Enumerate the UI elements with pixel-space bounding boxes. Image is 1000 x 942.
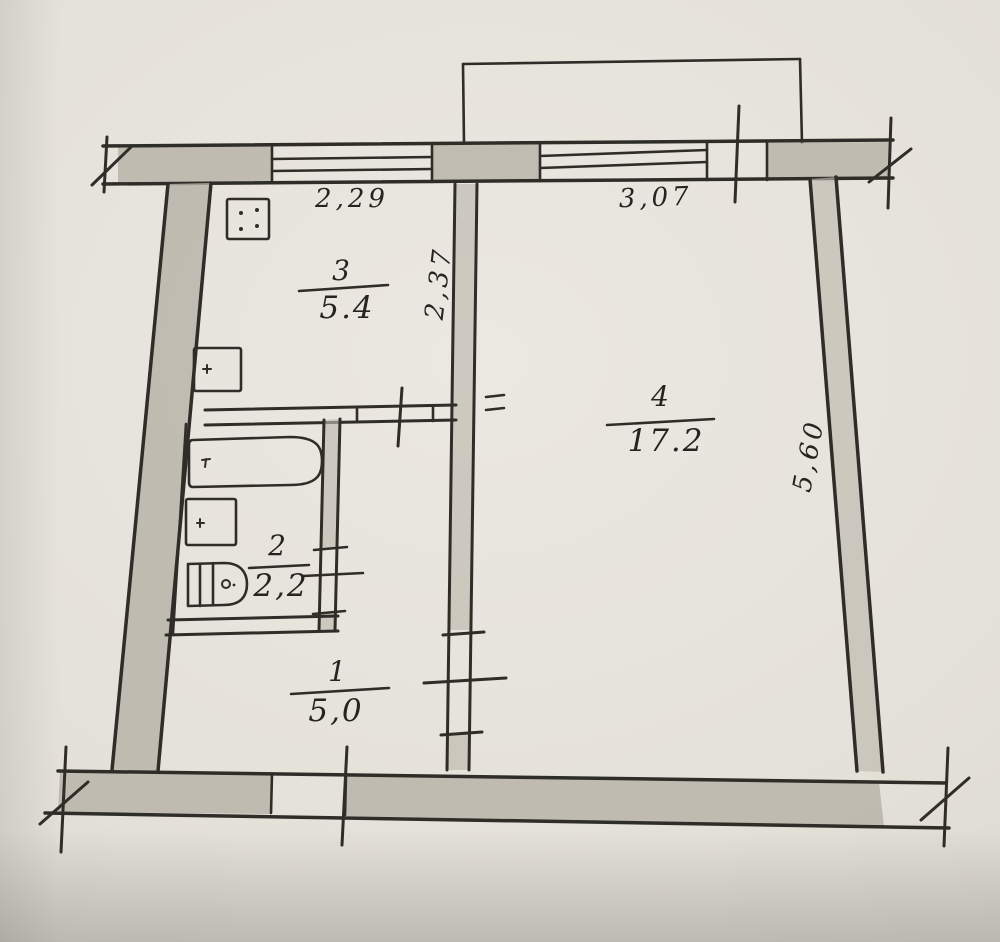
balcony-outline [463,59,802,143]
room-2-area: 2,2 [252,568,308,604]
right-wall [810,177,883,772]
toilet-icon [188,563,247,606]
dimension-right-side: 5,60 [787,416,831,494]
window-left [272,157,432,171]
room-1-number: 1 [328,655,346,688]
room4-door-opening [424,632,506,735]
room-1-label: 1 5,0 [291,655,389,729]
dimension-tick-divider [398,388,402,446]
bathroom-door-opening [313,547,347,614]
equals-mark [486,395,504,410]
top-wall [92,106,911,208]
floor-plan-drawing: 2,29 3,07 2,37 5,60 3 5.4 2 2,2 1 5,0 4 … [0,0,1000,942]
room-3-area: 5.4 [319,290,374,326]
kitchen-sink-icon [194,348,241,391]
room-1-area: 5,0 [308,693,363,729]
room-4-number: 4 [650,380,669,413]
room-4-area: 17.2 [627,423,704,459]
room-3-number: 3 [332,254,350,287]
room2-leader-line [303,573,363,576]
bathtub-icon [189,437,322,487]
bottom-wall [40,747,969,852]
dimension-window-left: 2,29 [314,184,389,214]
entrance-opening [271,774,346,815]
room-2-number: 2 [267,529,286,562]
dimension-tick-top-mid [735,106,739,202]
room-2-label: 2 2,2 [249,529,309,604]
floor-plan-photo: 2,29 3,07 2,37 5,60 3 5.4 2 2,2 1 5,0 4 … [0,0,1000,942]
window-right [540,150,707,168]
dimension-tick-bottom-right [921,748,969,846]
room-4-label: 4 17.2 [607,380,714,459]
room-3-label: 3 5.4 [299,254,388,326]
washbasin-icon [186,499,236,545]
dimension-window-right: 3,07 [618,182,693,215]
left-wall [112,183,211,771]
stove-icon [227,199,269,239]
